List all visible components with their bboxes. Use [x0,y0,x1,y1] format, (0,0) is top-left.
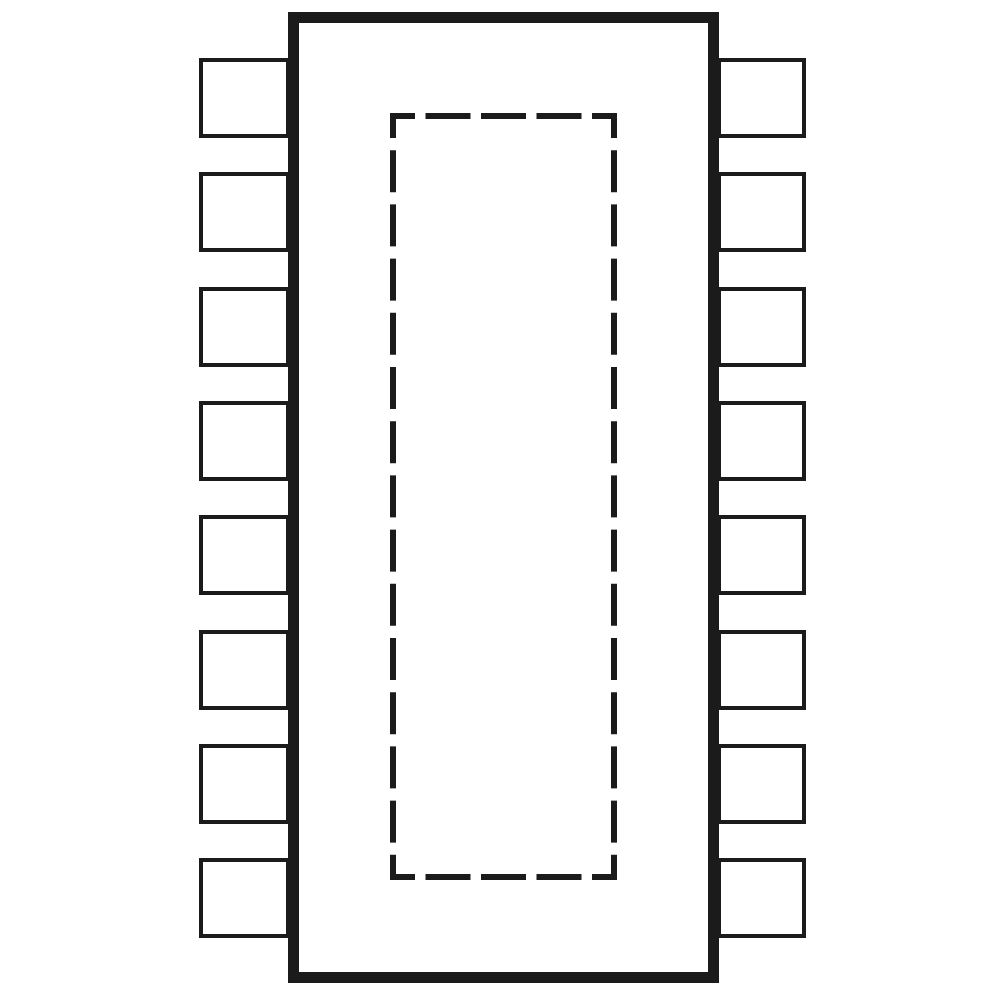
pin-right-1 [719,60,804,136]
pin-right-4 [719,403,804,479]
pin-right-3 [719,289,804,365]
pin-right-2 [719,174,804,250]
pins-right-group [719,60,804,936]
pin-left-5 [201,517,288,593]
pin-left-3 [201,289,288,365]
pin-right-5 [719,517,804,593]
pin-right-8 [719,860,804,936]
pin-left-7 [201,746,288,822]
pin-right-6 [719,632,804,708]
pin-left-8 [201,860,288,936]
package-outline-svg [0,0,1000,1000]
pin-left-2 [201,174,288,250]
pin-right-7 [719,746,804,822]
ic-package-diagram [0,0,1000,1000]
pin-left-1 [201,60,288,136]
pin-left-4 [201,403,288,479]
package-body [294,18,714,978]
pins-left-group [201,60,288,936]
pin-left-6 [201,632,288,708]
